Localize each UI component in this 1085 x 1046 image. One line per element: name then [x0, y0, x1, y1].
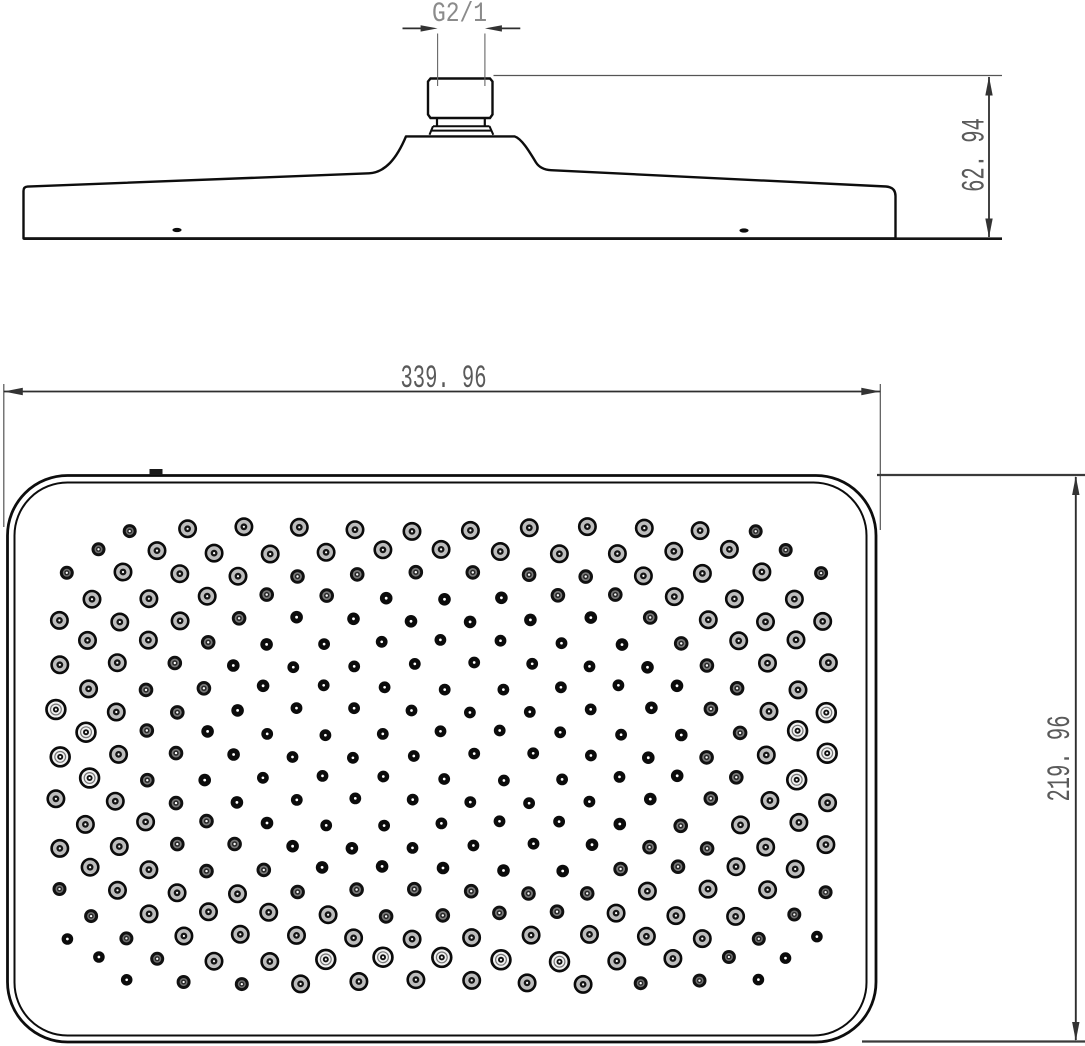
svg-text:G2/1: G2/1: [432, 0, 487, 30]
svg-text:219. 96: 219. 96: [1044, 715, 1080, 801]
svg-text:62. 94: 62. 94: [958, 118, 994, 192]
svg-text:339. 96: 339. 96: [400, 362, 486, 398]
